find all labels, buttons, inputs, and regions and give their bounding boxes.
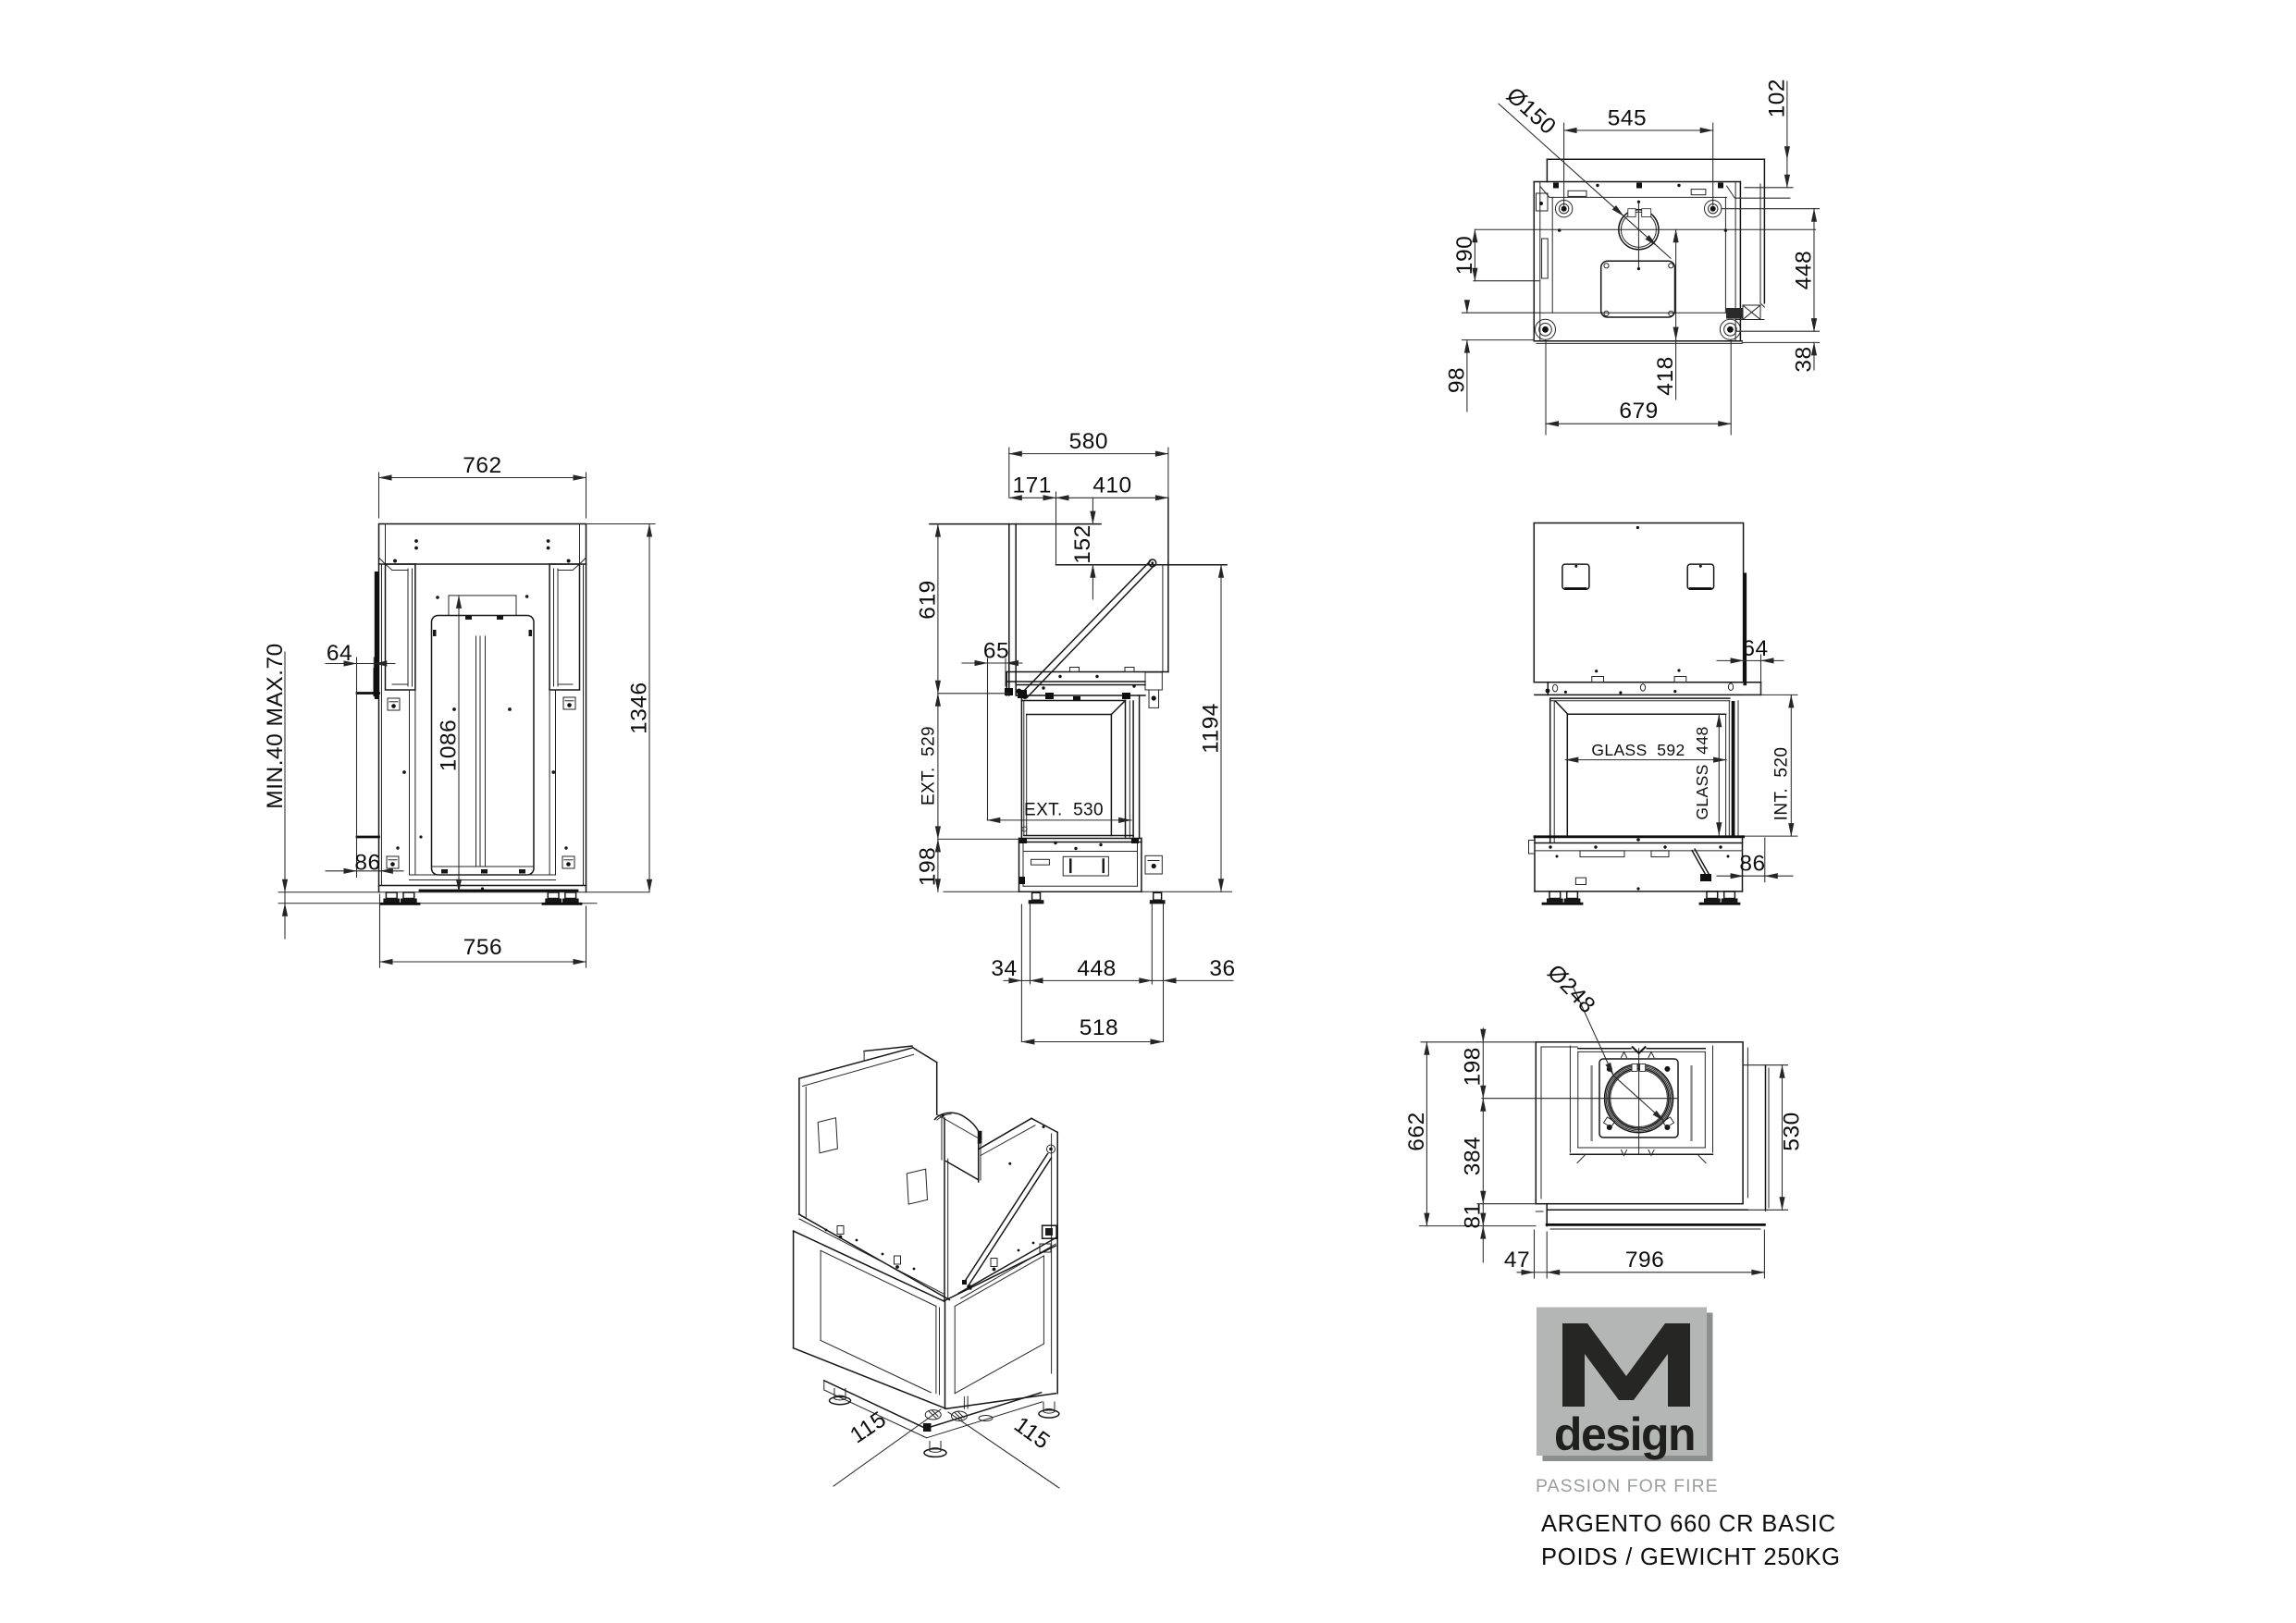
svg-text:1086: 1086 [437, 719, 462, 772]
svg-text:580: 580 [1069, 429, 1108, 454]
svg-text:530: 530 [1780, 1112, 1805, 1150]
svg-text:34: 34 [991, 956, 1017, 981]
svg-text:171: 171 [1013, 473, 1052, 498]
svg-text:Ø150: Ø150 [1501, 83, 1561, 141]
svg-text:GLASS 592: GLASS 592 [1591, 741, 1685, 759]
svg-text:design: design [1554, 1408, 1695, 1460]
svg-text:86: 86 [354, 851, 380, 876]
svg-text:518: 518 [1080, 1015, 1118, 1040]
svg-text:GLASS 448: GLASS 448 [1693, 726, 1711, 819]
svg-text:545: 545 [1608, 106, 1647, 131]
svg-text:86: 86 [1739, 852, 1765, 877]
svg-text:152: 152 [1070, 524, 1095, 563]
svg-text:384: 384 [1461, 1137, 1486, 1175]
svg-text:115: 115 [1009, 1412, 1055, 1455]
svg-text:115: 115 [846, 1407, 891, 1448]
svg-text:MIN.40 MAX.70: MIN.40 MAX.70 [263, 643, 288, 808]
svg-text:64: 64 [327, 641, 352, 666]
svg-text:INT. 520: INT. 520 [1772, 747, 1792, 821]
svg-text:EXT. 529: EXT. 529 [920, 726, 939, 805]
svg-text:756: 756 [463, 935, 502, 960]
svg-text:38: 38 [1792, 346, 1817, 372]
svg-text:662: 662 [1404, 1112, 1429, 1150]
svg-text:679: 679 [1619, 399, 1658, 424]
svg-text:64: 64 [1742, 636, 1768, 661]
svg-text:448: 448 [1077, 956, 1116, 981]
svg-text:98: 98 [1445, 367, 1470, 393]
svg-text:796: 796 [1625, 1248, 1664, 1273]
svg-text:65: 65 [983, 639, 1009, 664]
svg-text:1346: 1346 [627, 682, 652, 734]
svg-text:ARGENTO 660 CR BASIC: ARGENTO 660 CR BASIC [1541, 1511, 1836, 1537]
svg-text:619: 619 [916, 580, 941, 619]
svg-text:198: 198 [916, 847, 941, 886]
svg-text:410: 410 [1092, 473, 1131, 498]
svg-text:POIDS / GEWICHT 250KG: POIDS / GEWICHT 250KG [1541, 1544, 1841, 1570]
svg-text:448: 448 [1792, 251, 1817, 289]
svg-text:418: 418 [1653, 356, 1678, 395]
svg-text:198: 198 [1461, 1047, 1486, 1086]
svg-text:EXT. 530: EXT. 530 [1024, 801, 1104, 820]
svg-text:81: 81 [1461, 1202, 1486, 1228]
svg-text:1194: 1194 [1199, 703, 1224, 754]
svg-text:47: 47 [1504, 1248, 1530, 1273]
svg-text:190: 190 [1452, 236, 1477, 275]
svg-text:102: 102 [1765, 79, 1790, 117]
svg-text:Ø248: Ø248 [1542, 960, 1599, 1018]
svg-text:PASSION FOR FIRE: PASSION FOR FIRE [1536, 1476, 1719, 1496]
svg-text:36: 36 [1209, 956, 1235, 981]
svg-text:762: 762 [463, 453, 501, 478]
